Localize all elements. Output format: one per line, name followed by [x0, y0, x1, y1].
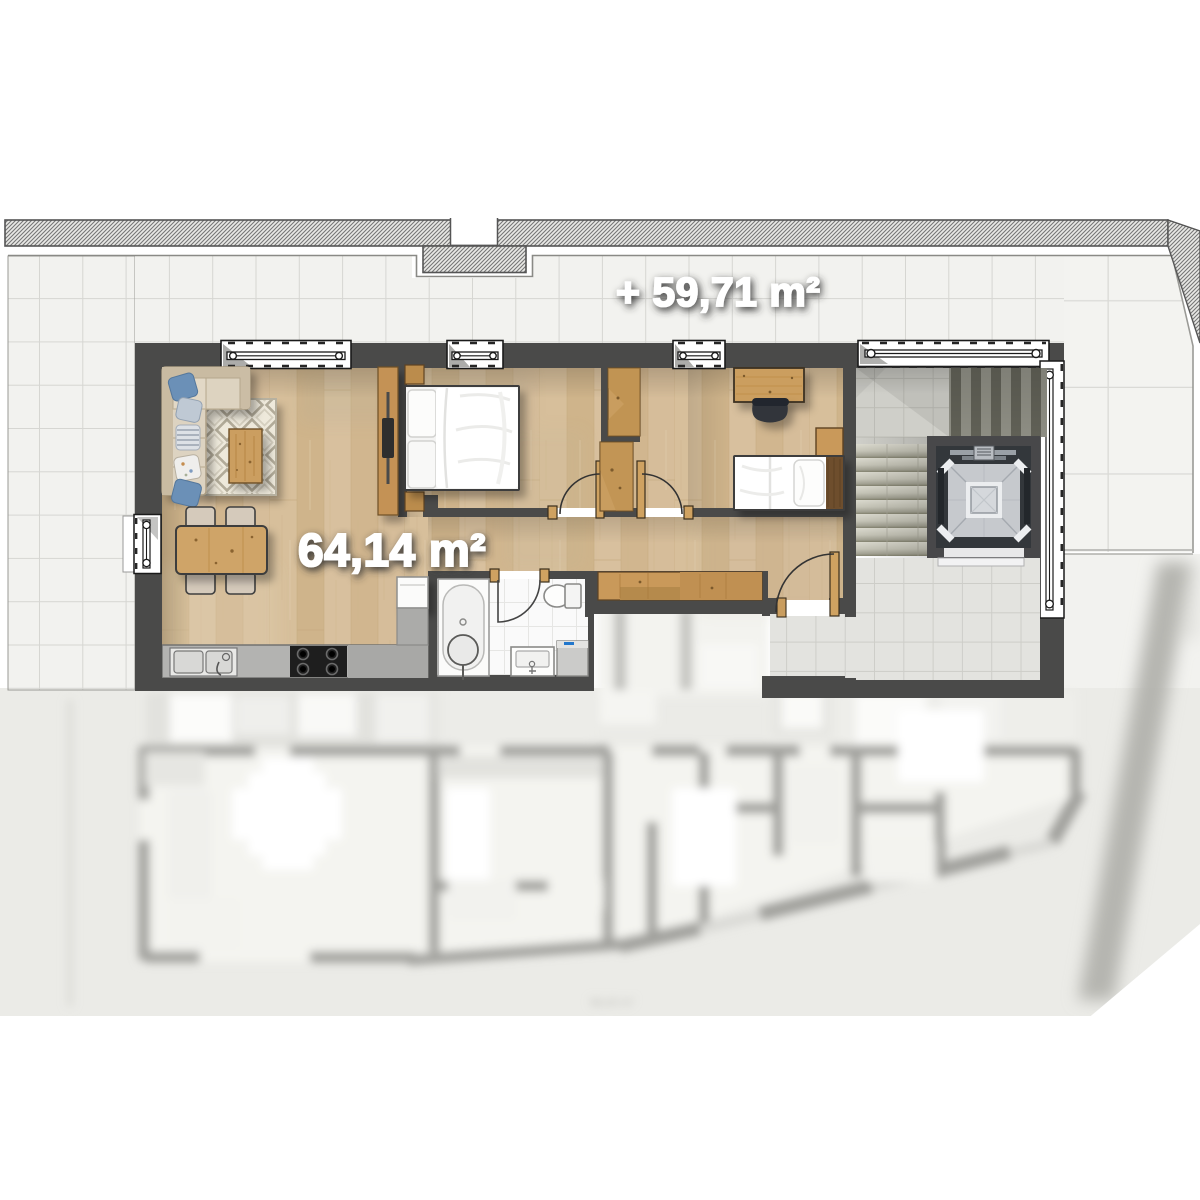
svg-text:+ 59,71 m²: + 59,71 m² [616, 269, 820, 315]
svg-text:64,14 m²: 64,14 m² [298, 524, 486, 576]
svg-text:58,43 m²: 58,43 m² [590, 997, 634, 1009]
